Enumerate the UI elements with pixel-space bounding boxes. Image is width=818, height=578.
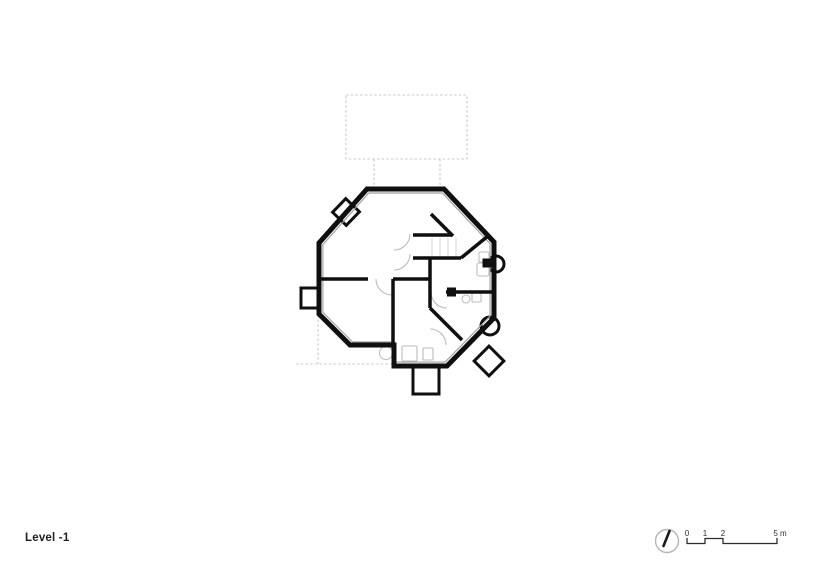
door-swing-arc <box>394 234 410 250</box>
diamond-bay-lower-right <box>474 346 504 376</box>
door-swing-arc <box>430 329 446 345</box>
north-arrow-ring <box>656 530 679 553</box>
scale-bar-line <box>687 538 777 544</box>
upper-level-dashed-outline <box>296 95 467 364</box>
level-label: Level -1 <box>25 532 70 544</box>
interior-wall <box>430 308 462 340</box>
scale-tick-label: 2 <box>721 529 726 538</box>
fixture-wc-small <box>472 293 481 302</box>
door-swings <box>376 234 447 345</box>
door-swing-arc <box>394 254 410 270</box>
door-swing-arc <box>431 292 447 308</box>
column <box>447 288 456 297</box>
north-arrow-icon <box>656 530 679 553</box>
stair-wall <box>431 214 453 236</box>
fixture-sink <box>462 295 470 303</box>
floor-plan-canvas: 0 1 2 5 m Level -1 <box>0 0 818 578</box>
scale-tick-label: 0 <box>685 529 690 538</box>
scale-bar: 0 1 2 5 m <box>685 529 787 544</box>
stair-treads <box>432 238 456 256</box>
door-swing-arc <box>376 279 392 295</box>
fixture-shower <box>402 346 417 361</box>
fixture-basin <box>380 347 393 360</box>
dashed-rect-above <box>346 95 467 159</box>
drawing-sheet: 0 1 2 5 m Level -1 <box>0 0 818 578</box>
entry-stub-bottom <box>413 366 439 394</box>
scale-tick-label: 5 m <box>773 529 787 538</box>
fixture-cabinet <box>423 348 433 360</box>
column <box>483 259 492 268</box>
interior-walls <box>319 214 493 346</box>
scale-tick-label: 1 <box>703 529 708 538</box>
